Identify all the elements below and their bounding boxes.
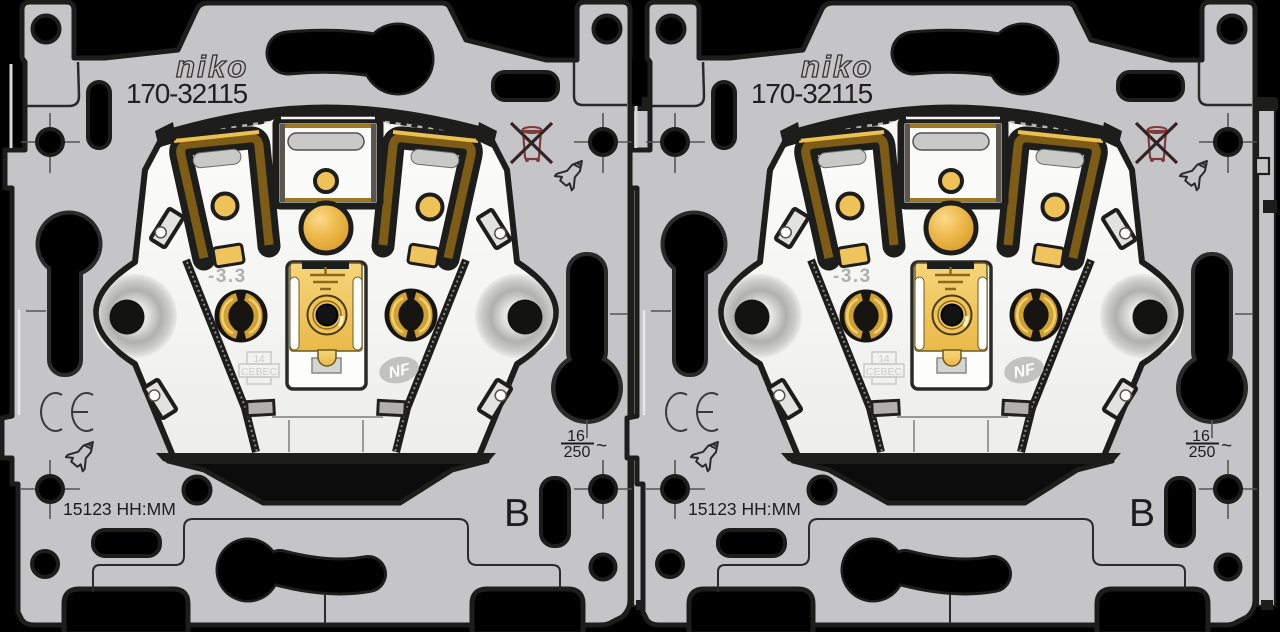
- svg-text:16: 16: [567, 428, 585, 445]
- svg-text:CEBEC: CEBEC: [241, 366, 278, 378]
- svg-text:-3.3: -3.3: [208, 266, 247, 287]
- svg-text:B: B: [504, 492, 530, 535]
- svg-text:~: ~: [596, 436, 607, 457]
- svg-text:15123 HH:MM: 15123 HH:MM: [63, 499, 176, 519]
- svg-text:250: 250: [564, 444, 591, 461]
- svg-text:14: 14: [253, 354, 265, 365]
- svg-text:170-32115: 170-32115: [126, 78, 248, 109]
